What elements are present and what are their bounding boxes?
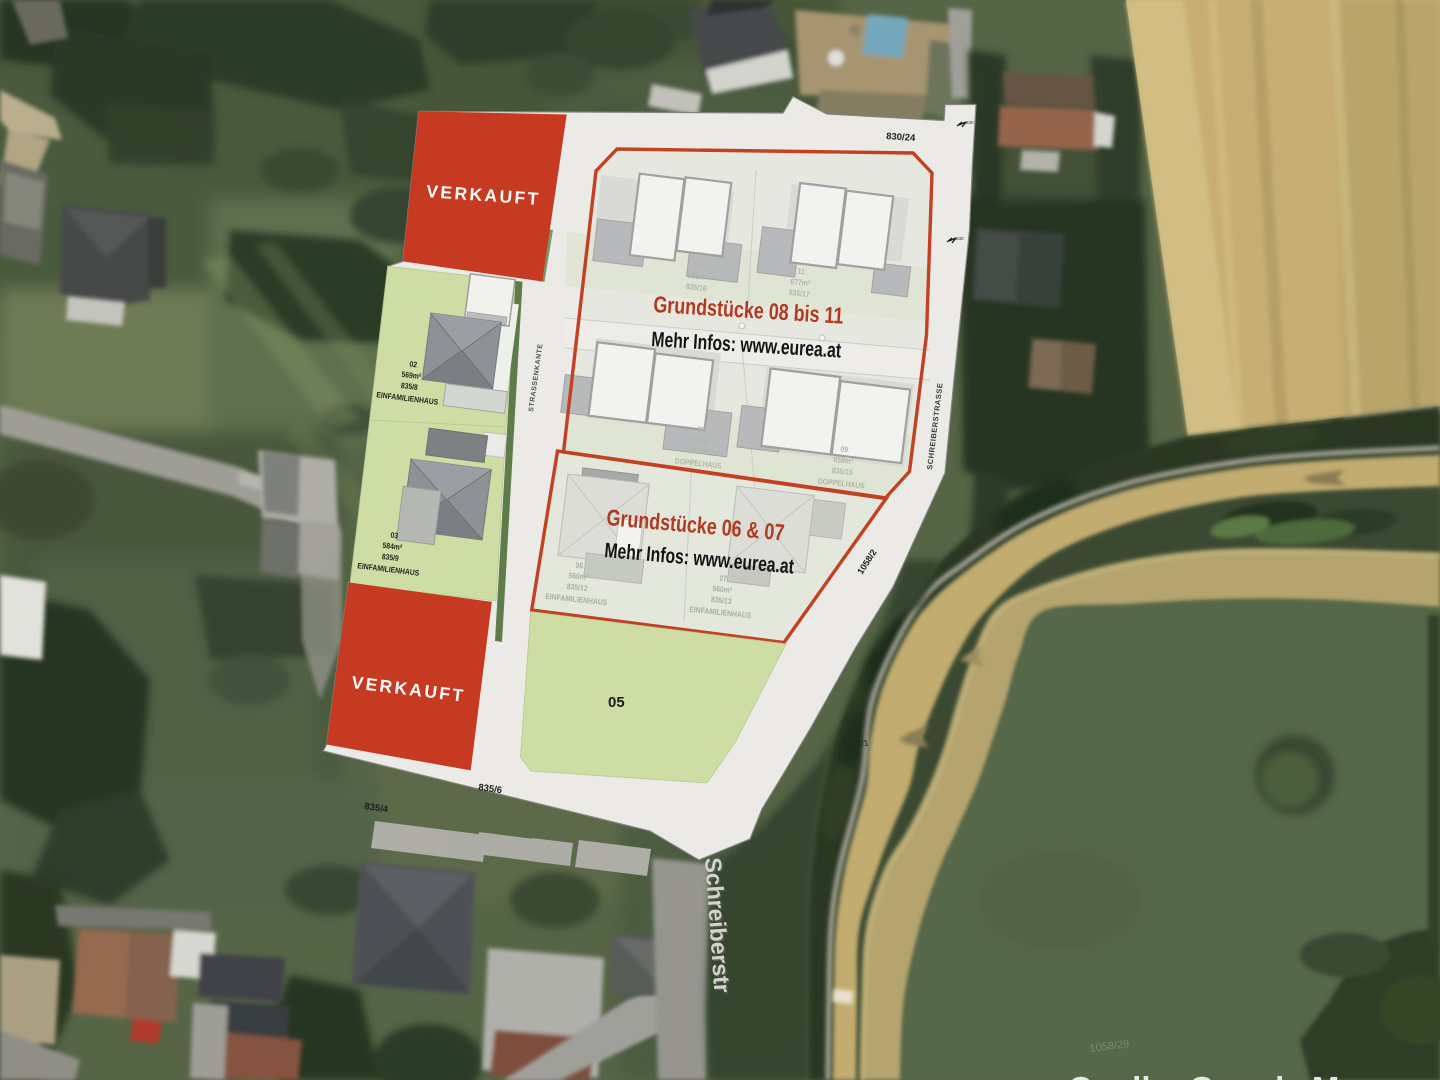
svg-text:830: 830 bbox=[956, 236, 964, 241]
svg-text:11: 11 bbox=[797, 266, 805, 276]
svg-text:09: 09 bbox=[840, 444, 849, 454]
svg-text:830/24: 830/24 bbox=[886, 131, 916, 144]
svg-text:835/8: 835/8 bbox=[400, 380, 418, 392]
svg-text:07: 07 bbox=[719, 573, 728, 583]
svg-text:08: 08 bbox=[697, 424, 706, 434]
svg-text:Quelle: Google Ma: Quelle: Google Ma bbox=[1068, 1070, 1358, 1080]
svg-text:835/9: 835/9 bbox=[381, 551, 399, 563]
svg-text:830: 830 bbox=[966, 120, 974, 125]
svg-text:03: 03 bbox=[390, 530, 399, 541]
svg-text:05: 05 bbox=[608, 694, 625, 711]
svg-text:10: 10 bbox=[694, 260, 703, 270]
svg-text:06: 06 bbox=[575, 560, 584, 570]
svg-text:02: 02 bbox=[409, 359, 418, 370]
